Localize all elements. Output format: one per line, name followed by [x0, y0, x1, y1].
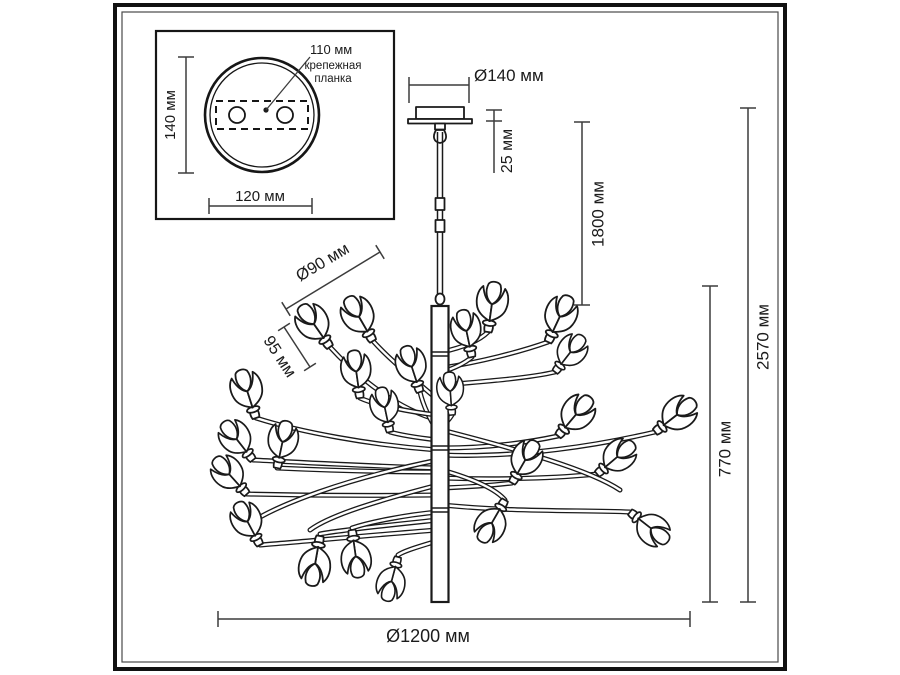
- dim-body-height-label: 770 мм: [715, 421, 734, 477]
- center-stem: [432, 306, 449, 602]
- mounting-hole: [229, 107, 245, 123]
- dim-total-height-label: 2570 мм: [753, 304, 772, 370]
- plate-note-line1: крепежная: [305, 60, 362, 72]
- plate-dim-label: 110 мм: [310, 42, 352, 57]
- dim-overall-diameter-label: Ø1200 мм: [386, 626, 470, 646]
- dim-canopy-width-label: 120 мм: [235, 188, 285, 205]
- dimension-drawing: 110 мм крепежная планка 140 мм 120 мм: [0, 0, 900, 675]
- drawing-canvas: 110 мм крепежная планка 140 мм 120 мм: [0, 0, 900, 675]
- mounting-hole: [277, 107, 293, 123]
- dim-canopy-depth-label: 25 мм: [499, 129, 516, 173]
- inset-detail-box: 110 мм крепежная планка 140 мм 120 мм: [156, 31, 394, 219]
- dim-canopy-diameter-label: Ø140 мм: [474, 66, 544, 85]
- dim-suspension-label: 1800 мм: [588, 181, 607, 247]
- plate-note-line2: планка: [314, 73, 352, 85]
- dim-canopy-height-label: 140 мм: [162, 90, 179, 140]
